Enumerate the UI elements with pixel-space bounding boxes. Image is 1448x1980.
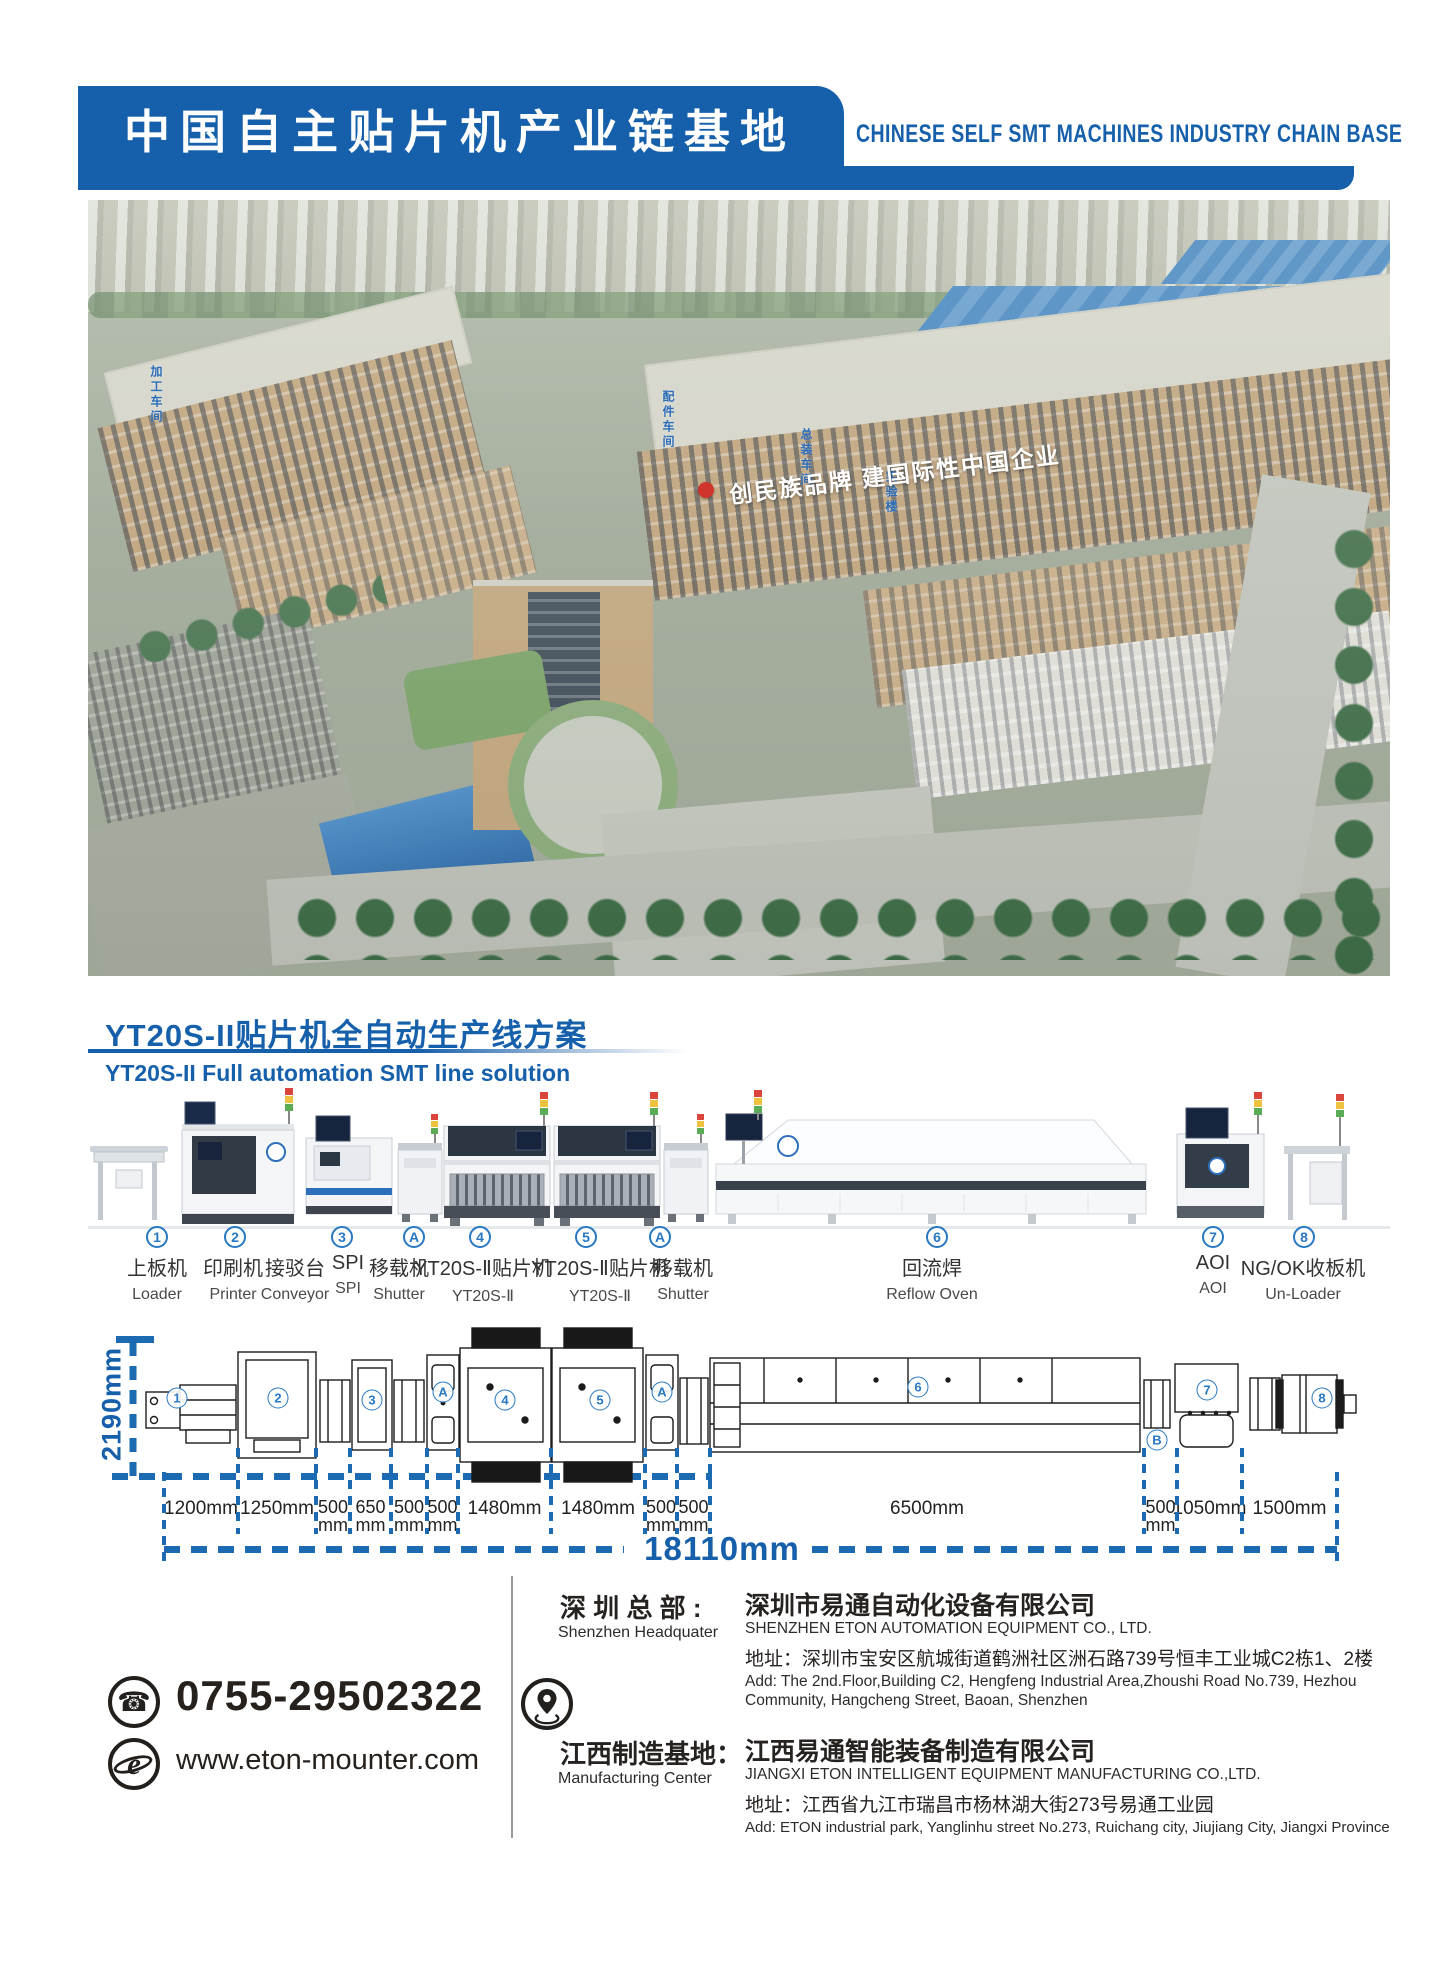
machine-shutter-a1 [398, 1114, 442, 1222]
station-marker-4: 4 [469, 1226, 491, 1248]
jiangxi-company-zh: 江西易通智能装备制造有限公司 [745, 1732, 1095, 1768]
machine-aoi [1177, 1092, 1264, 1218]
shenzhen-address-en: Add: The 2nd.Floor,Building C2, Hengfeng… [745, 1672, 1390, 1710]
building-sign: 配件车间 [660, 390, 677, 450]
dimension-separator [389, 1448, 393, 1534]
station-marker-8: 8 [1293, 1226, 1315, 1248]
total-dim-line-right [812, 1546, 1337, 1553]
station-label-en: Printer [203, 1286, 263, 1304]
phone-glyph: ☎ [117, 1689, 151, 1716]
smt-line-illustration [88, 1086, 1390, 1234]
station-label-zh: SPI [332, 1252, 364, 1275]
brochure-page: 中国自主贴片机产业链基地 CHINESE SELF SMT MACHINES I… [0, 0, 1448, 1980]
station-label-en: Shutter [653, 1286, 713, 1304]
jiangxi-company-en: JIANGXI ETON INTELLIGENT EQUIPMENT MANUF… [745, 1766, 1261, 1784]
photo-haze [88, 200, 1390, 976]
station-label-zh: 上板机 [127, 1252, 187, 1281]
website-icon: e [108, 1738, 160, 1790]
dimension-separator [549, 1448, 553, 1534]
station-marker-5: 5 [575, 1226, 597, 1248]
jiangxi-label-zh: 江西制造基地： [560, 1734, 742, 1771]
station-label: NG/OK收板机Un-Loader [1241, 1252, 1365, 1304]
dimension-separator [643, 1448, 647, 1534]
dimension-separator [348, 1448, 352, 1534]
phone-icon: ☎ [108, 1676, 160, 1728]
dimension-label: 500mm [1145, 1498, 1175, 1534]
station-label-zh: 印刷机 [203, 1252, 263, 1281]
dimension-label: 500mm [427, 1498, 457, 1534]
section-title-en: YT20S-II Full automation SMT line soluti… [105, 1060, 570, 1087]
layout-mark-6: 6 [908, 1377, 929, 1398]
dimension-label: 500mm [646, 1498, 676, 1534]
station-label-zh: AOI [1196, 1252, 1230, 1275]
station-label-zh: YT20S-Ⅱ贴片机 [531, 1252, 669, 1281]
shenzhen-company-en: SHENZHEN ETON AUTOMATION EQUIPMENT CO., … [745, 1620, 1152, 1638]
machine-reflow-oven [716, 1090, 1146, 1224]
dimension-separator [456, 1448, 460, 1534]
dimension-label: 1500mm [1253, 1498, 1327, 1520]
jiangxi-address-en: Add: ETON industrial park, Yanglinhu str… [745, 1818, 1390, 1837]
station-marker-3: 3 [331, 1226, 353, 1248]
layout-mark-1: 1 [167, 1388, 188, 1409]
layout-mark-7: 7 [1197, 1380, 1218, 1401]
hero-photo: 加工车间 配件车间 总装车间 实验楼 创民族品牌 建国际性中国企业 [88, 200, 1390, 976]
station-label-en: YT20S-Ⅱ [531, 1286, 669, 1306]
page-title-zh: 中国自主贴片机产业链基地 [124, 96, 796, 162]
station-label-en: Un-Loader [1241, 1286, 1365, 1304]
dimension-label: 1480mm [468, 1498, 542, 1520]
website-url[interactable]: www.eton-mounter.com [176, 1744, 479, 1777]
machine-loader [90, 1146, 168, 1220]
dimension-separator [675, 1448, 679, 1534]
machine-spi [306, 1116, 392, 1214]
station-marker-A: A [403, 1226, 425, 1248]
layout-diagram-drawing [0, 1325, 1448, 1565]
page-title-en: CHINESE SELF SMT MACHINES INDUSTRY CHAIN… [856, 120, 1402, 149]
station-label-zh: 移载机 [653, 1252, 713, 1281]
station-marker-6: 6 [926, 1226, 948, 1248]
station-label: 接驳台Conveyor [261, 1252, 329, 1304]
station-label-en: Loader [127, 1286, 187, 1304]
layout-mark-5: 5 [590, 1390, 611, 1411]
dimension-separator [425, 1448, 429, 1534]
building-sign: 加工车间 [148, 365, 165, 425]
station-label: 移载机Shutter [653, 1252, 713, 1304]
shenzhen-label-zh: 深 圳 总 部 : [560, 1588, 702, 1625]
layout-mark-A: A [652, 1382, 673, 1403]
section-underline [88, 1049, 688, 1053]
station-marker-A: A [649, 1226, 671, 1248]
machine-printer [182, 1088, 294, 1224]
station-label: SPISPI [332, 1252, 364, 1298]
station-label-zh: NG/OK收板机 [1241, 1252, 1365, 1281]
jiangxi-address-zh: 地址：江西省九江市瑞昌市杨林湖大街273号易通工业园 [745, 1790, 1214, 1817]
dimension-label: 6500mm [890, 1498, 964, 1520]
header-banner: 中国自主贴片机产业链基地 [78, 86, 844, 172]
dimension-label: 500mm [678, 1498, 708, 1534]
station-label-en: Reflow Oven [886, 1286, 978, 1304]
dimension-label: 1250mm [240, 1498, 314, 1520]
layout-mark-2: 2 [268, 1388, 289, 1409]
machine-shutter-a2 [664, 1114, 708, 1222]
machine-mounter-4 [444, 1092, 550, 1226]
dimension-label: 1200mm [164, 1498, 238, 1520]
layout-mark-4: 4 [495, 1390, 516, 1411]
phone-number: 0755-29502322 [176, 1672, 483, 1720]
dimension-separator [1240, 1448, 1244, 1534]
dimension-label: 500mm [318, 1498, 348, 1534]
station-label: AOIAOI [1196, 1252, 1230, 1298]
layout-mark-8: 8 [1312, 1388, 1333, 1409]
machine-mounter-5 [554, 1092, 660, 1226]
machine-unloader [1284, 1094, 1350, 1220]
total-dim-label: 18110mm [644, 1530, 800, 1568]
station-label-en: AOI [1196, 1280, 1230, 1298]
layout-mark-3: 3 [362, 1390, 383, 1411]
dimension-separator [236, 1448, 240, 1534]
station-label-zh: 回流焊 [886, 1252, 978, 1281]
station-label-en: Conveyor [261, 1286, 329, 1304]
pin-glyph [525, 1682, 569, 1726]
dimension-label: 650mm [355, 1498, 385, 1534]
station-marker-2: 2 [224, 1226, 246, 1248]
station-marker-1: 1 [146, 1226, 168, 1248]
layout-mark-A: A [433, 1382, 454, 1403]
shenzhen-address-zh: 地址：深圳市宝安区航城街道鹤洲社区洲石路739号恒丰工业城C2栋1、2楼 [745, 1644, 1373, 1671]
location-pin-icon [521, 1678, 573, 1730]
dimension-separator [708, 1448, 712, 1534]
station-label-en: SPI [332, 1280, 364, 1298]
total-dim-line-left [164, 1546, 624, 1553]
shenzhen-label-en: Shenzhen Headquater [558, 1624, 718, 1642]
layout-mark-B: B [1147, 1430, 1168, 1451]
dimension-label: 1050mm [1173, 1498, 1247, 1520]
station-label-zh: 接驳台 [261, 1252, 329, 1281]
jiangxi-label-en: Manufacturing Center [558, 1770, 712, 1788]
dimension-separator [1142, 1448, 1146, 1534]
dimension-label: 500mm [394, 1498, 424, 1534]
station-marker-7: 7 [1202, 1226, 1224, 1248]
dimension-separator [314, 1448, 318, 1534]
station-label: 回流焊Reflow Oven [886, 1252, 978, 1304]
dimension-separator [1175, 1448, 1179, 1534]
station-label: 印刷机Printer [203, 1252, 263, 1304]
footer-divider [511, 1576, 513, 1838]
dimension-label: 1480mm [561, 1498, 635, 1520]
shenzhen-company-zh: 深圳市易通自动化设备有限公司 [745, 1586, 1095, 1622]
station-label: 上板机Loader [127, 1252, 187, 1304]
station-label: YT20S-Ⅱ贴片机YT20S-Ⅱ [531, 1252, 669, 1306]
